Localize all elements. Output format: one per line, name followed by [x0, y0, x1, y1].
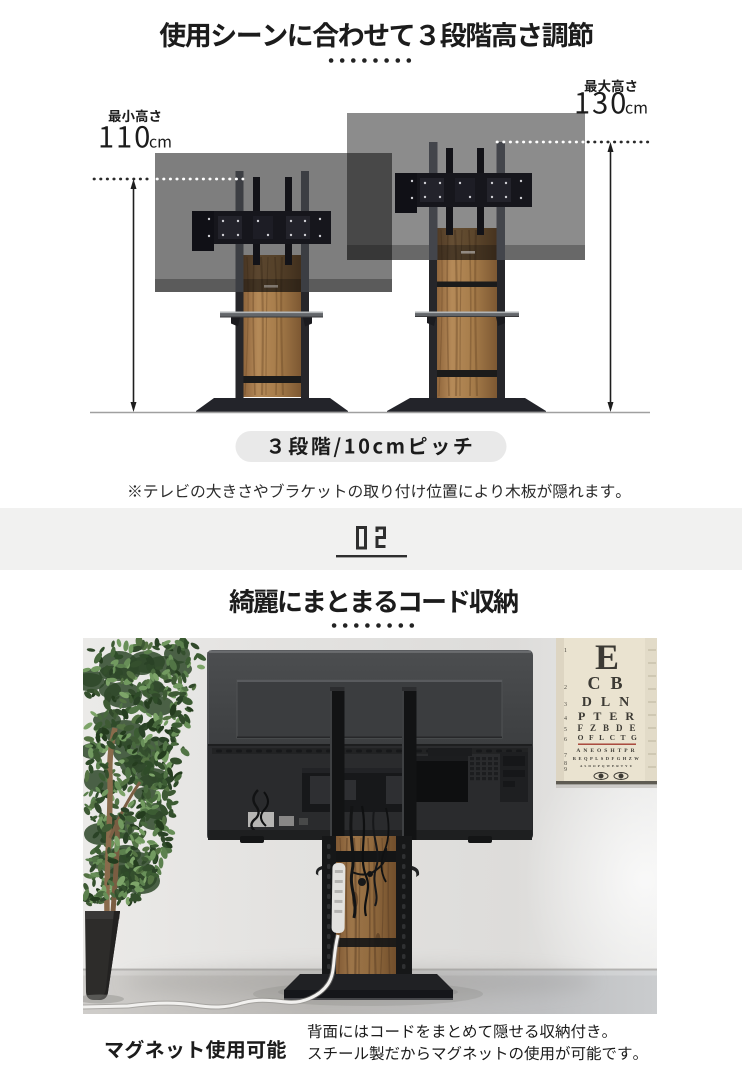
- svg-text:PTER: PTER: [578, 709, 642, 723]
- svg-text:DLN: DLN: [582, 695, 639, 710]
- svg-text:E: E: [595, 637, 619, 677]
- svg-text:2: 2: [564, 685, 567, 691]
- svg-text:ASDOPQWERTYU: ASDOPQWERTYU: [580, 764, 634, 768]
- svg-text:1: 1: [564, 648, 567, 654]
- svg-text:5: 5: [564, 727, 567, 733]
- svg-text:ANEOSHTPR: ANEOSHTPR: [576, 748, 637, 754]
- svg-text:FZBDE: FZBDE: [577, 723, 642, 733]
- svg-text:CB: CB: [587, 673, 632, 693]
- svg-text:6: 6: [564, 737, 567, 743]
- svg-text:9: 9: [564, 767, 567, 773]
- svg-text:REQPLSDFGHZW: REQPLSDFGHZW: [573, 756, 642, 761]
- svg-text:4: 4: [564, 716, 567, 722]
- svg-text:3: 3: [564, 702, 567, 708]
- svg-text:OFLCTG: OFLCTG: [578, 733, 643, 742]
- svg-text:7: 7: [564, 753, 567, 759]
